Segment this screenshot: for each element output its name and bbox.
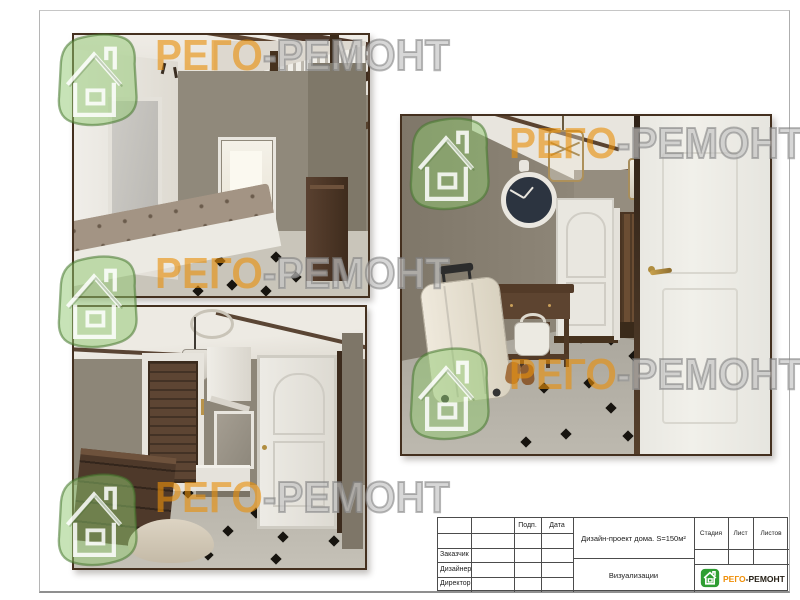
watermark-text: РЕГО-РЕМОНТ: [155, 252, 450, 296]
signature-col-header: Подп.: [514, 522, 541, 529]
brass-detail: [201, 399, 204, 415]
watermark-text: РЕГО-РЕМОНТ: [509, 353, 800, 397]
watermark-text: РЕГО-РЕМОНТ: [155, 34, 450, 78]
wall-clock: [501, 172, 557, 228]
project-title: Дизайн-проект дома. S=150м²: [573, 534, 694, 543]
door-knob: [262, 445, 267, 450]
door-arch-panel: [566, 212, 606, 278]
drawer-knob: [548, 304, 551, 307]
watermark-house-icon: [398, 342, 494, 444]
company-logo-icon: [700, 568, 720, 588]
date-col-header: Дата: [541, 522, 573, 529]
door-panel: [662, 152, 738, 274]
sheets-header: Листов: [753, 530, 789, 537]
watermark-house-icon: [398, 112, 494, 214]
white-pilaster: [207, 347, 251, 401]
pendant-cord: [194, 317, 196, 349]
title-block: Подп. Дата Заказчик Дизайнер Директор Ди…: [437, 517, 788, 591]
watermark-house-icon: [46, 250, 142, 352]
cabinet-shelf: [310, 185, 344, 189]
role-director: Директор: [440, 580, 471, 587]
sheet-name: Визуализации: [573, 571, 694, 580]
sheet-header: Лист: [728, 530, 753, 537]
ceiling-medallion: [190, 309, 234, 339]
drawer-knob: [510, 304, 513, 307]
hall-mirror: [214, 411, 254, 469]
stage-header: Стадия: [694, 530, 728, 537]
company-logo-text: РЕГО-РЕМОНТ: [723, 574, 785, 584]
watermark-house-icon: [46, 468, 142, 570]
design-sheet: РЕГО-РЕМОНТ РЕГО-РЕМОНТ РЕГО-РЕМОНТ РЕГО…: [0, 0, 800, 600]
watermark-text: РЕГО-РЕМОНТ: [509, 122, 800, 166]
console-top: [488, 284, 574, 293]
role-designer: Дизайнер: [440, 566, 471, 573]
watermark-text: РЕГО-РЕМОНТ: [155, 476, 450, 520]
role-customer: Заказчик: [440, 551, 469, 558]
watermark-house-icon: [46, 28, 142, 130]
door-arch-panel: [273, 373, 325, 435]
